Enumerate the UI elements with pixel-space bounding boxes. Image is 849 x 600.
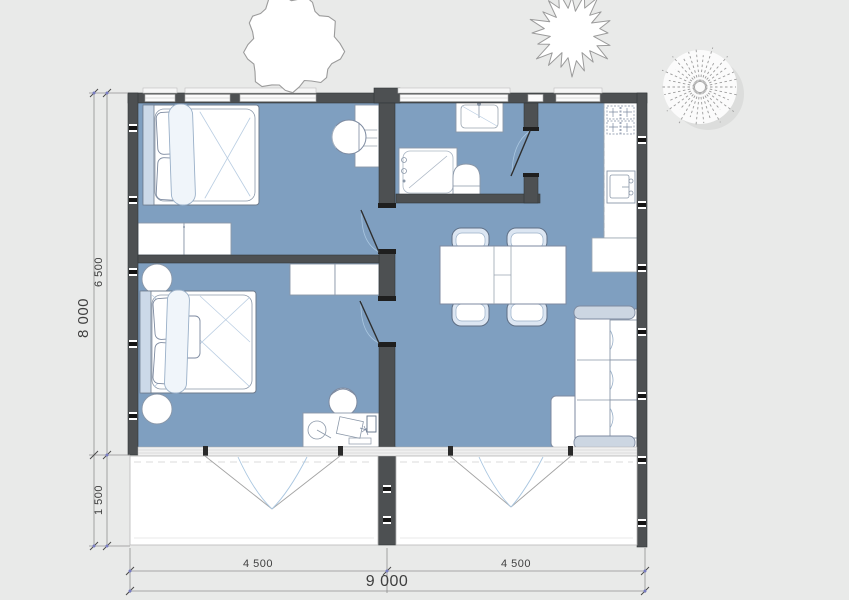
porch-post — [374, 88, 400, 103]
floor-plan-drawing: 8 000 6 500 1 500 4 500 4 500 9 000 — [0, 0, 849, 600]
dim-total-height: 8 000 — [75, 298, 92, 338]
terrace-left — [130, 456, 378, 545]
right-wall — [637, 93, 647, 547]
tree-feather — [662, 48, 744, 131]
stool — [142, 394, 172, 424]
dim-total-width: 9 000 — [366, 573, 409, 590]
partition-wall-middle — [379, 252, 395, 300]
shower — [399, 148, 457, 196]
double-bed — [140, 290, 256, 394]
desk — [303, 413, 379, 447]
wardrobe — [290, 264, 379, 295]
floor-plan-canvas: 8 000 6 500 1 500 4 500 4 500 9 000 — [0, 0, 849, 600]
toilet — [453, 164, 480, 197]
dining-table — [440, 246, 566, 304]
bathroom-bottom-wall — [396, 194, 540, 203]
dim-bay-right: 4 500 — [501, 558, 531, 570]
window-sills — [143, 88, 602, 93]
plant — [142, 264, 172, 294]
round-chair — [332, 120, 366, 154]
dim-terrace-depth: 1 500 — [93, 485, 105, 515]
partition-wall-upper — [379, 103, 395, 207]
round-tree — [244, 0, 345, 93]
double-bed — [143, 104, 259, 206]
desk-chair — [329, 388, 357, 416]
dim-indoor-depth: 6 500 — [93, 257, 105, 287]
terrace-right — [396, 456, 637, 545]
bottom-glazing — [138, 446, 637, 456]
dresser — [138, 223, 231, 255]
spiky-tree — [530, 0, 610, 77]
bathroom-right-wall-a — [524, 103, 538, 130]
bathroom-right-wall-b — [524, 176, 538, 203]
washbasin — [456, 99, 503, 132]
bedroom-divider-wall — [138, 255, 379, 263]
kitchen-sink — [607, 171, 635, 203]
partition-wall-lower — [379, 345, 395, 447]
dim-bay-left: 4 500 — [243, 558, 273, 570]
terrace-divider-wall — [378, 447, 396, 545]
